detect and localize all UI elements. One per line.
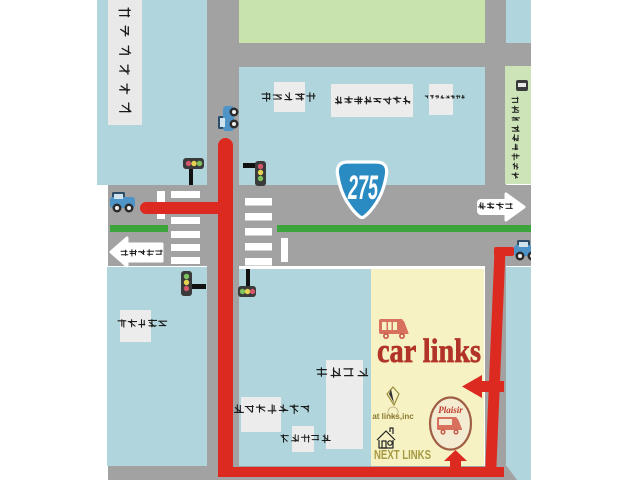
- svg-text:Plaisir: Plaisir: [438, 405, 463, 415]
- svg-text:car links: car links: [377, 333, 481, 370]
- svg-text:275: 275: [347, 169, 378, 207]
- svg-text:NEXT LINKS: NEXT LINKS: [374, 447, 431, 462]
- svg-text:at links,inc: at links,inc: [372, 412, 414, 421]
